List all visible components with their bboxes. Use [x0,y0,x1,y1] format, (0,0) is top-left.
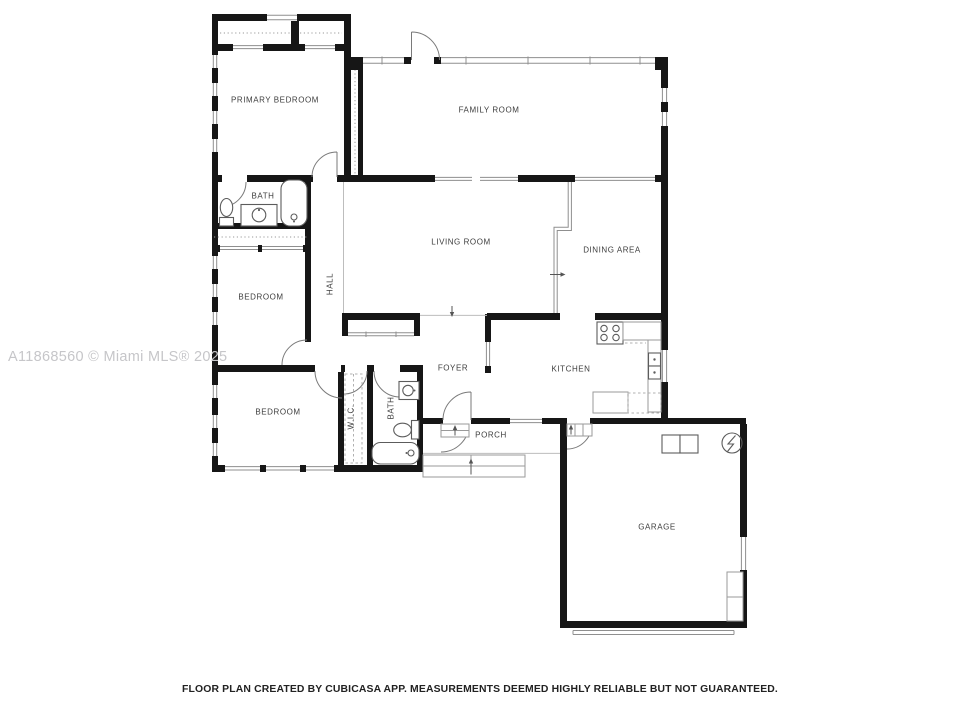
garage-steps [567,424,592,436]
entry-step [441,424,469,437]
room-label-garage: GARAGE [638,523,676,532]
door-swing [374,371,400,397]
room-label-dining-area: DINING AREA [583,246,641,255]
garage-door [573,631,734,635]
bathtub [281,180,307,226]
family-room-door-swing [412,32,440,60]
kitchen-sink [649,353,661,379]
room-label-bath-primary: BATH [252,192,275,201]
second-bath-fixtures [372,382,419,465]
door-swing [282,340,307,365]
stove [597,322,623,344]
toilet [220,199,234,227]
room-label-kitchen: KITCHEN [552,365,591,374]
room-label-hall: HALL [326,273,335,295]
bathtub [372,443,419,465]
disclaimer-text: FLOOR PLAN CREATED BY CUBICASA APP. MEAS… [0,684,960,695]
electrical-panel-icon [722,433,742,453]
floor-plan-page: PRIMARY BEDROOM FAMILY ROOM BATH LIVING … [0,0,960,720]
door-swing [312,152,337,177]
mls-watermark: A11868560 © Miami MLS® 2025 [8,349,227,365]
room-label-family-room: FAMILY ROOM [459,106,520,115]
room-label-porch: PORCH [475,431,507,440]
room-label-bath-second: BATH [387,397,396,420]
toilet [394,421,419,440]
sink-vanity [241,205,277,227]
room-label-bedroom-middle: BEDROOM [238,293,283,302]
storage-shelf [727,572,743,621]
primary-bath-fixtures [220,180,308,226]
room-label-foyer: FOYER [438,364,468,373]
room-label-bedroom-bottom: BEDROOM [255,408,300,417]
kitchen-fixtures [593,322,661,413]
porch-steps [423,455,525,477]
room-label-wic: W.I.C. [347,404,356,429]
room-label-primary-bedroom: PRIMARY BEDROOM [231,96,319,105]
washer-dryer [662,435,698,453]
room-label-living-room: LIVING ROOM [431,238,490,247]
sink-vanity [399,382,419,400]
front-door-swing [443,392,471,420]
door-swing [315,371,342,398]
